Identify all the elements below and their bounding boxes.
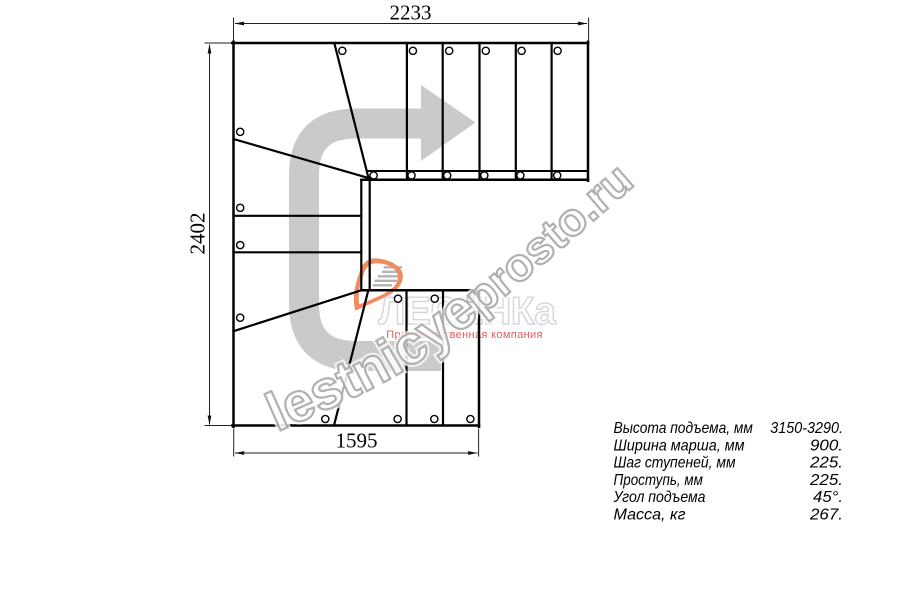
svg-text:225.: 225. [809, 472, 843, 489]
svg-text:Высота подъема, мм: Высота подъема, мм [614, 420, 753, 437]
svg-text:225.: 225. [809, 455, 843, 472]
svg-text:2233: 2233 [390, 1, 432, 25]
svg-text:2402: 2402 [186, 213, 210, 255]
svg-text:Ширина марша, мм: Ширина марша, мм [614, 437, 745, 454]
svg-text:Проступь, мм: Проступь, мм [614, 472, 703, 489]
svg-text:900.: 900. [810, 437, 843, 454]
svg-text:267.: 267. [809, 507, 843, 524]
svg-text:1595: 1595 [336, 429, 378, 453]
svg-text:Угол подъема: Угол подъема [613, 489, 706, 506]
svg-text:3150-3290.: 3150-3290. [770, 420, 843, 437]
svg-text:Масса, кг: Масса, кг [614, 507, 686, 524]
svg-text:45°.: 45°. [813, 489, 843, 506]
svg-text:Шаг ступеней, мм: Шаг ступеней, мм [614, 455, 736, 472]
